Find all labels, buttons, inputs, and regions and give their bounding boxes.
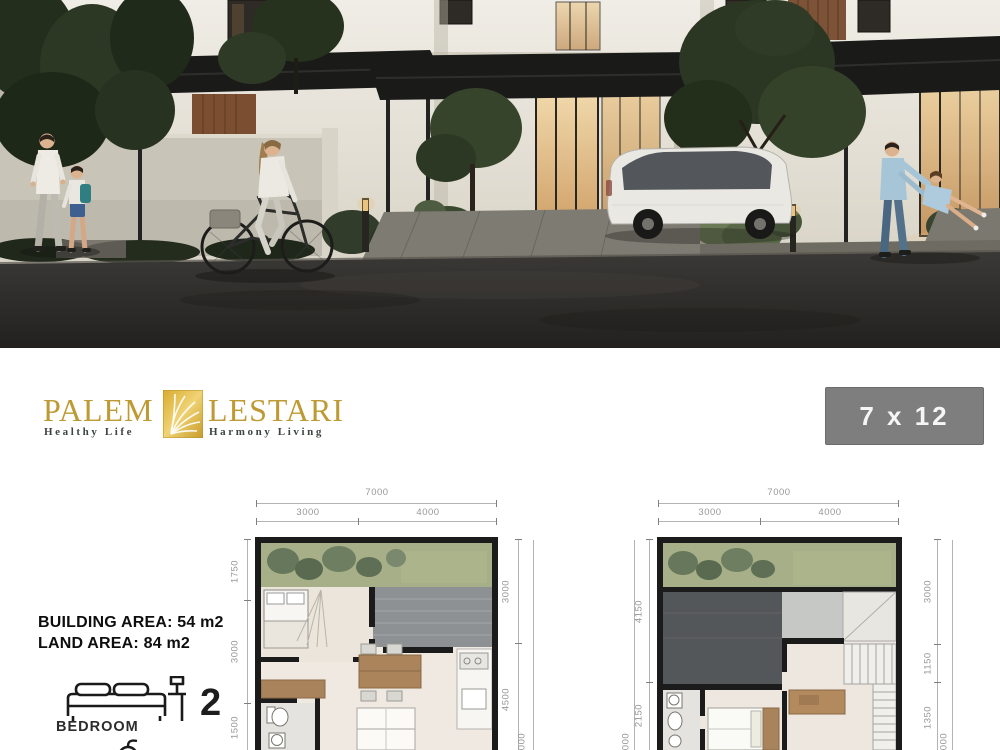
dim-label: 1500 (230, 698, 241, 750)
dim-label: 4150 (634, 582, 645, 642)
bathroom (261, 703, 315, 750)
palm-leaf-icon (163, 390, 203, 438)
logo-word-palem: PALEM (43, 394, 154, 426)
shower-icon-partial (110, 736, 154, 750)
size-badge: 7 x 12 (825, 387, 984, 445)
dim-line (952, 540, 953, 750)
dim-label: 000 (517, 712, 528, 750)
floorplan-upper (657, 537, 902, 750)
dim-tick (658, 500, 659, 507)
area-specs: BUILDING AREA: 54 m2 LAND AREA: 84 m2 (38, 612, 224, 654)
floorplan-upper-drawing (663, 543, 896, 750)
garden-strip (261, 543, 492, 587)
floorplan-ground (255, 537, 498, 750)
dim-tick (515, 539, 522, 540)
flyer-page: PALEM LESTARI Healthy Life Harmony Livin… (0, 0, 1000, 750)
dim-tick (658, 518, 659, 525)
dim-label: 3000 (501, 562, 512, 622)
bathroom (663, 690, 700, 750)
dim-tick (358, 518, 359, 525)
dim-line (247, 540, 248, 750)
cabinet (261, 680, 325, 698)
dim-tick (244, 600, 251, 601)
floorplan-ground-drawing (261, 543, 492, 750)
dim-label: 1150 (923, 634, 934, 694)
bedroom-label: BEDROOM (56, 719, 139, 735)
bedroom-count: 2 (200, 682, 221, 725)
road (0, 250, 1000, 348)
dim-label: 7000 (347, 487, 407, 498)
wall (663, 587, 896, 592)
dim-label: 4500 (501, 670, 512, 730)
dim-tick (934, 644, 941, 645)
dim-line (649, 540, 650, 750)
dim-tick (646, 539, 653, 540)
dim-tick (496, 518, 497, 525)
dim-tick (244, 703, 251, 704)
tagline-right: Harmony Living (209, 426, 324, 438)
dim-label: 1750 (230, 542, 241, 602)
dim-line (659, 521, 899, 522)
dim-tick (256, 500, 257, 507)
roof-void (663, 592, 782, 684)
dim-label: 3000 (923, 562, 934, 622)
dim-label: 000 (621, 712, 632, 750)
dim-label: 2150 (634, 686, 645, 746)
dim-label: 1350 (923, 688, 934, 748)
sofa (357, 708, 415, 750)
dim-tick (256, 518, 257, 525)
dim-label: 3000 (230, 622, 241, 682)
dim-tick (496, 500, 497, 507)
logo-word-lestari: LESTARI (208, 394, 344, 426)
bed-icon (64, 676, 196, 722)
desk (789, 690, 845, 714)
dim-tick (760, 518, 761, 525)
dim-tick (515, 643, 522, 644)
dim-label: 3000 (680, 507, 740, 518)
dim-line (533, 540, 534, 750)
kitchen-counter (457, 649, 492, 729)
hero-rendering-scene (0, 0, 1000, 348)
dim-tick (646, 682, 653, 683)
dim-tick (934, 682, 941, 683)
carport-area (373, 587, 492, 647)
building-area-text: BUILDING AREA: 54 m2 (38, 612, 224, 633)
dim-label: 7000 (749, 487, 809, 498)
dim-label: 000 (939, 712, 950, 750)
dim-line (659, 503, 899, 504)
dim-label: 4000 (398, 507, 458, 518)
dim-tick (898, 518, 899, 525)
bed-furniture (708, 708, 779, 750)
dim-tick (244, 539, 251, 540)
dim-label: 4000 (800, 507, 860, 518)
dim-line (257, 521, 497, 522)
dim-tick (934, 539, 941, 540)
dim-line (257, 503, 497, 504)
tagline-left: Healthy Life (44, 426, 134, 438)
dim-tick (898, 500, 899, 507)
hero-rendering (0, 0, 1000, 348)
dim-label: 3000 (278, 507, 338, 518)
land-area-text: LAND AREA: 84 m2 (38, 633, 224, 654)
garden-strip (663, 543, 896, 589)
